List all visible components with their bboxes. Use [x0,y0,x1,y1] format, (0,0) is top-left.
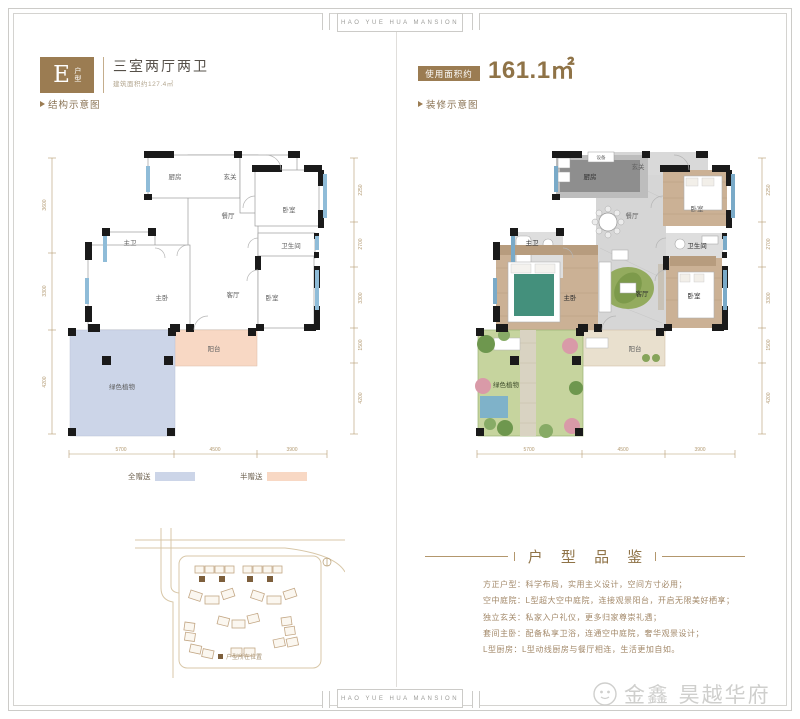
room-label-bedroom-top: 卧室 [283,205,297,214]
highlighted-buildings [199,576,273,582]
dim-label: 4500 [209,447,220,453]
legend-half-gift-swatch [267,472,307,481]
room-label-foyer: 玄关 [632,162,646,171]
structure-section-text: 结构示意图 [48,97,101,111]
dim-label: 5700 [115,447,126,453]
room-label-plants: 绿色植物 [493,380,520,389]
review-line: 空中庭院：L型超大空中庭院，连接观景阳台，开启无限美好栖享； [483,597,773,606]
dim-label: 5700 [523,447,534,453]
dim-label: 2700 [358,238,364,249]
bottom-banner: HAO YUE HUA MANSION [337,689,463,708]
decoration-section-label: 装修示意图 [418,97,479,111]
area-badge: 使用面积约 [418,66,480,81]
dim-label: 2250 [358,184,364,195]
dim-label: 3300 [358,292,364,303]
dim-label: 4200 [42,376,48,387]
room-label-bedroom-bottom: 卧室 [266,293,280,302]
room-label-kitchen: 厨房 [584,172,597,181]
title-rule-right [662,556,745,557]
dim-label: 4200 [766,392,772,403]
developer-logo: 金鑫 昊越华府 [592,679,771,709]
layout-title: 三室两厅两卫 [113,56,209,76]
room-label-bedroom-bottom: 卧室 [688,291,702,300]
dim-label: 3900 [694,447,705,453]
logo-icon [592,681,618,707]
dim-label: 3300 [766,292,772,303]
title-tick [655,552,656,561]
dim-label: 2250 [766,184,772,195]
review-body: 方正户型：科学布局，实用主义设计，空间方寸必用； 空中庭院：L型超大空中庭院，连… [483,581,773,662]
header-divider [103,57,104,93]
room-label-master-bath: 主卫 [124,238,138,247]
structure-section-label: 结构示意图 [40,97,101,111]
dim-label: 3600 [42,199,48,210]
triangle-bullet-icon [40,101,45,107]
room-label-bath: 卫生间 [281,241,301,250]
legend-half-gift: 半赠送 [240,471,307,482]
dim-label: 4200 [358,392,364,403]
sitemap-marker-icon [218,654,223,659]
top-banner: HAO YUE HUA MANSION [337,13,463,32]
dim-label: 1500 [766,339,772,350]
decoration-section-text: 装修示意图 [426,97,479,111]
review-title-row: 户 型 品 鉴 [425,546,745,567]
area-value: 161.1㎡ [488,50,575,85]
triangle-bullet-icon [418,101,423,107]
room-label-living: 客厅 [227,290,241,299]
review-title: 户 型 品 鉴 [521,546,650,567]
center-divider [396,30,397,687]
dim-label: 3300 [42,285,48,296]
room-label-foyer: 玄关 [224,172,238,181]
room-label-balcony: 阳台 [629,344,642,353]
layout-subtitle: 建筑面积约127.4㎡ [113,78,174,88]
unit-type-vertical-label: 户型 [74,67,81,83]
title-rule-left [425,556,508,557]
dim-label: 3900 [286,447,297,453]
legend-full-gift-swatch [155,472,195,481]
banner-tick [472,691,480,708]
sitemap [135,528,345,688]
dim-label: 1500 [358,339,364,350]
title-tick [514,552,515,561]
review-line: 套间主卧：配备私享卫浴，连通空中庭院，奢华观景设计； [483,630,773,639]
dim-label: 4500 [617,447,628,453]
sitemap-note-text: 户型所在位置 [226,652,262,661]
banner-tick [472,13,480,30]
room-label-dining: 餐厅 [222,211,236,220]
room-label-living: 客厅 [636,289,650,298]
banner-tick [322,691,330,708]
review-line: L型厨房：L型动线厨房与餐厅相连，生活更加自如。 [483,646,773,655]
brochure-page: HAO YUE HUA MANSION HAO YUE HUA MANSION … [0,0,800,719]
review-line: 方正户型：科学布局，实用主义设计，空间方寸必用； [483,581,773,590]
room-label-bedroom-top: 卧室 [691,204,705,213]
legend-full-gift-label: 全赠送 [128,471,151,482]
room-label-plants: 绿色植物 [109,382,136,391]
structural-floorplan: 厨房 玄关 卧室 餐厅 卫生间 主卫 主卧 客厅 卧室 阳台 绿色植物 5700… [42,138,377,473]
room-label-kitchen: 厨房 [169,172,182,181]
room-label-bath: 卫生间 [687,241,707,250]
room-label-balcony: 阳台 [208,344,221,353]
room-label-master-bath: 主卫 [526,238,540,247]
compass-icon [323,558,331,566]
dim-label: 2700 [766,238,772,249]
room-label-equipment: 设备 [597,154,606,161]
sitemap-note: 户型所在位置 [150,652,330,661]
decorated-floorplan: 设备 厨房 玄关 卧室 餐厅 卫生间 主卫 主卧 客厅 卧室 阳台 绿色植物 5… [450,138,785,473]
review-line: 独立玄关：私家入户礼仪，更多归家尊崇礼遇； [483,614,773,623]
unit-letter: E [53,64,70,87]
legend-half-gift-label: 半赠送 [240,471,263,482]
full-gift-garden-area [70,330,175,436]
room-label-master-bedroom: 主卧 [156,293,170,302]
unit-type-badge: E 户型 [40,57,94,93]
legend-full-gift: 全赠送 [128,471,195,482]
room-label-master-bedroom: 主卧 [564,293,578,302]
banner-tick [322,13,330,30]
logo-text: 金鑫 昊越华府 [624,679,771,709]
room-label-dining: 餐厅 [626,211,640,220]
